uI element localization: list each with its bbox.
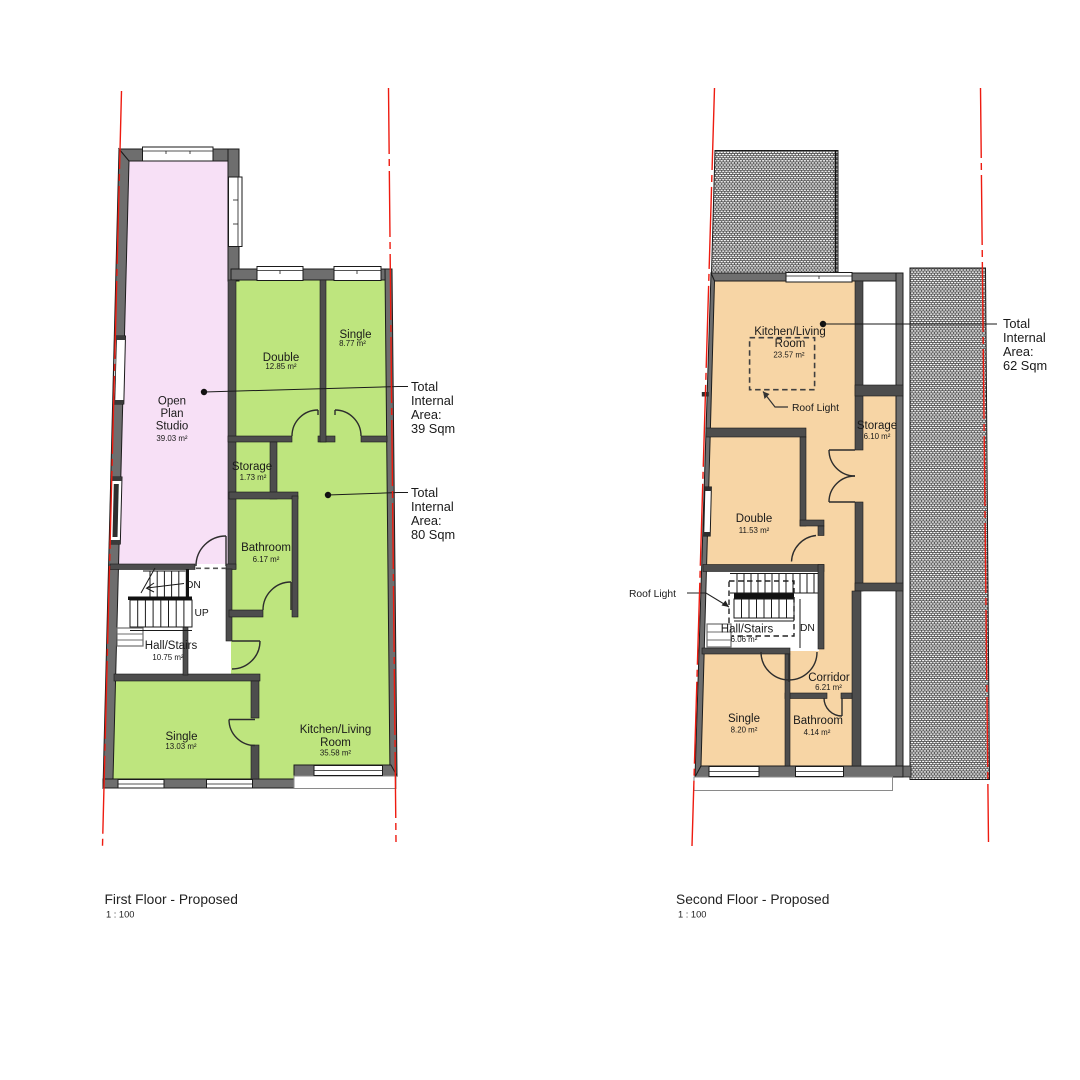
svg-text:6.10 m²: 6.10 m² [864,432,891,441]
svg-text:1 : 100: 1 : 100 [678,910,706,920]
svg-text:Area:: Area: [1003,344,1034,359]
svg-text:Internal: Internal [411,499,454,514]
svg-text:Second Floor - Proposed: Second Floor - Proposed [676,892,829,907]
svg-text:Total: Total [411,379,438,394]
svg-text:Room: Room [775,338,806,350]
svg-text:8.20 m²: 8.20 m² [731,726,758,735]
svg-text:80 Sqm: 80 Sqm [411,527,455,542]
svg-text:Open: Open [158,396,186,408]
svg-text:Double: Double [736,513,772,525]
svg-text:8.77 m²: 8.77 m² [339,339,366,348]
svg-text:62 Sqm: 62 Sqm [1003,358,1047,373]
svg-text:First Floor - Proposed: First Floor - Proposed [105,892,238,907]
svg-text:Roof Light: Roof Light [629,589,676,600]
svg-text:4.14 m²: 4.14 m² [804,728,831,737]
svg-text:11.53 m²: 11.53 m² [739,526,770,535]
svg-text:Single: Single [728,713,760,725]
svg-text:Total: Total [1003,316,1030,331]
svg-text:6.21 m²: 6.21 m² [815,683,842,692]
svg-text:6.06 m²: 6.06 m² [731,635,758,644]
svg-text:39.03 m²: 39.03 m² [156,434,188,443]
svg-text:Hall/Stairs: Hall/Stairs [145,640,198,652]
svg-text:Storage: Storage [857,420,897,432]
svg-text:Room: Room [320,737,351,749]
svg-text:6.17 m²: 6.17 m² [253,555,280,564]
svg-text:39 Sqm: 39 Sqm [411,421,455,436]
svg-text:Internal: Internal [411,393,454,408]
svg-text:Bathroom: Bathroom [793,715,843,727]
svg-text:12.85 m²: 12.85 m² [265,362,297,371]
svg-text:DN: DN [800,623,815,634]
svg-text:23.57 m²: 23.57 m² [773,351,805,360]
svg-text:35.58 m²: 35.58 m² [320,749,352,758]
svg-text:UP: UP [195,608,209,619]
svg-text:Studio: Studio [156,421,189,433]
svg-text:Kitchen/Living: Kitchen/Living [300,724,372,736]
svg-text:Roof Light: Roof Light [792,403,839,414]
svg-text:1.73 m²: 1.73 m² [240,473,267,482]
svg-text:13.03 m²: 13.03 m² [165,742,197,751]
svg-text:Storage: Storage [232,461,272,473]
svg-text:Hall/Stairs: Hall/Stairs [721,624,774,636]
svg-text:1 : 100: 1 : 100 [106,910,134,920]
svg-text:DN: DN [186,580,201,591]
svg-text:Plan: Plan [160,408,183,420]
svg-text:Bathroom: Bathroom [241,542,291,554]
svg-text:10.75 m²: 10.75 m² [152,653,184,662]
svg-text:Kitchen/Living: Kitchen/Living [754,326,826,338]
svg-text:Internal: Internal [1003,330,1046,345]
svg-text:Area:: Area: [411,513,442,528]
svg-text:Area:: Area: [411,407,442,422]
svg-text:Total: Total [411,485,438,500]
